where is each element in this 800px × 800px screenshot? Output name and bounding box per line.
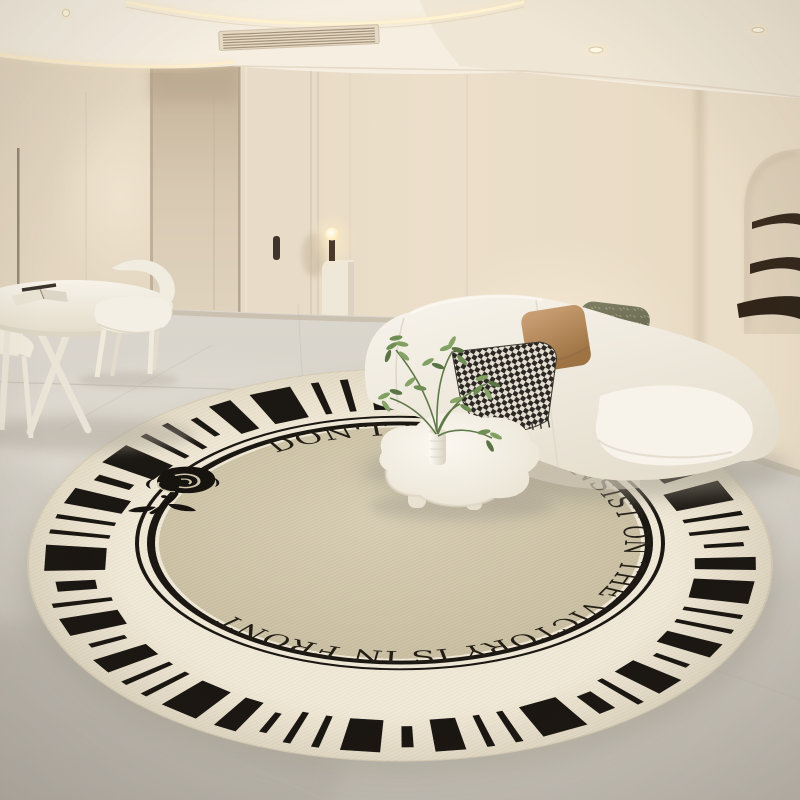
vignette (0, 0, 800, 800)
room-scene: DON'T GIVE UP, INSIST ON THE VICTORY IS … (0, 0, 800, 800)
living-room-photo: DON'T GIVE UP, INSIST ON THE VICTORY IS … (0, 0, 800, 800)
